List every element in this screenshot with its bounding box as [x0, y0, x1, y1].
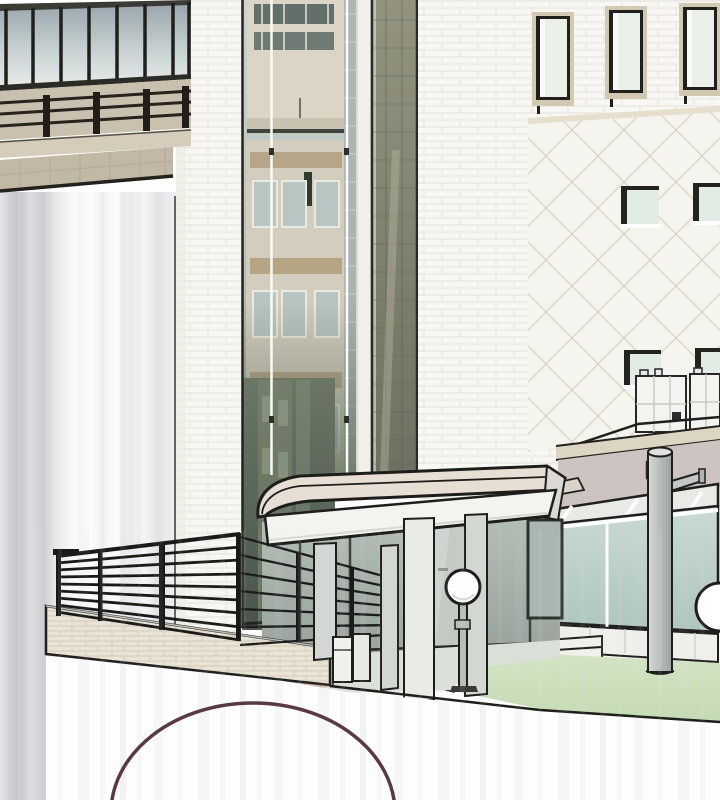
window: [605, 6, 647, 107]
window: [532, 12, 574, 114]
foreground-blur-wash: [0, 530, 720, 800]
window: [679, 3, 720, 104]
bridge-glass-screen: [0, 1, 191, 85]
pedestrian-bridge: [0, 0, 191, 191]
olive-glass-column: [372, 0, 418, 476]
webtoon-panel: [0, 0, 720, 800]
